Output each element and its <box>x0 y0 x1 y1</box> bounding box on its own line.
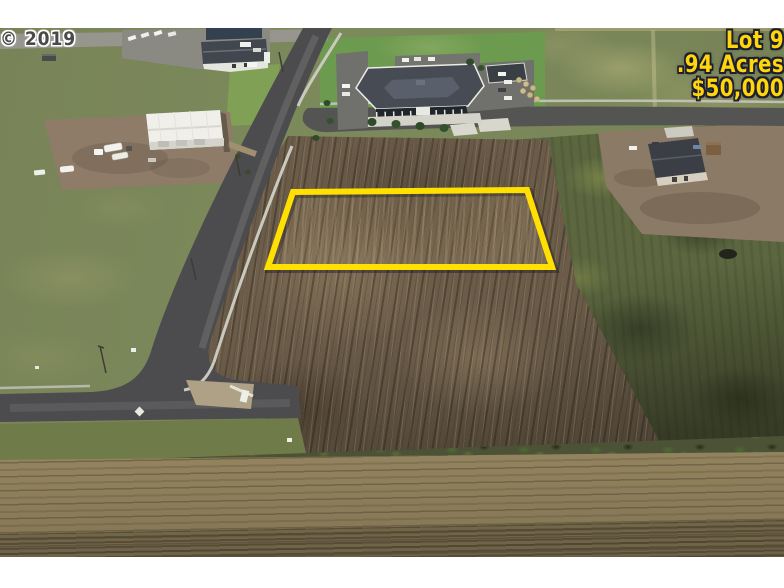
aerial-photo: © 2019 Lot 9 .94 Acres $50,000 <box>0 28 784 557</box>
lot-label: Lot 9 .94 Acres $50,000 <box>141 28 784 557</box>
lot-acreage: .94 Acres <box>141 52 784 76</box>
lot-price: $50,000 <box>141 76 784 100</box>
listing-screenshot: © 2019 Lot 9 .94 Acres $50,000 <box>0 0 784 588</box>
lot-name: Lot 9 <box>141 28 784 52</box>
